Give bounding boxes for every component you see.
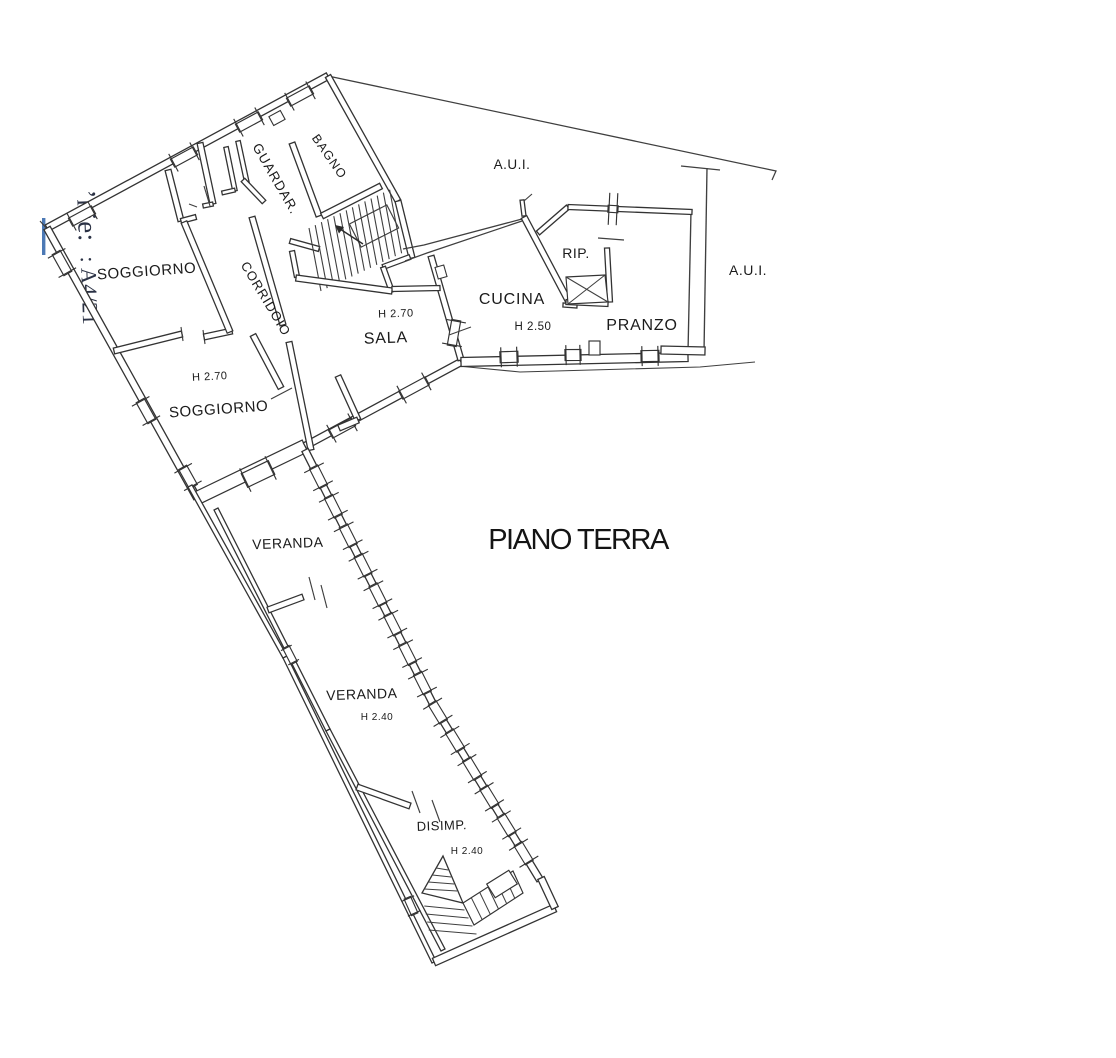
svg-text:DISIMP.: DISIMP. [416, 817, 467, 834]
svg-text:H 2.40: H 2.40 [451, 846, 483, 857]
svg-text:H 2.70: H 2.70 [192, 370, 228, 384]
svg-text:RIP.: RIP. [562, 245, 589, 261]
svg-text:PRANZO: PRANZO [606, 317, 677, 334]
svg-text:A.U.I.: A.U.I. [494, 157, 531, 172]
svg-text:H 2.50: H 2.50 [515, 321, 552, 333]
svg-text:VERANDA: VERANDA [252, 534, 324, 552]
svg-text:PIANO TERRA: PIANO TERRA [488, 524, 670, 556]
svg-text:CUCINA: CUCINA [479, 291, 545, 308]
svg-text:A.U.I.: A.U.I. [729, 262, 767, 278]
svg-text:VERANDA: VERANDA [326, 685, 398, 703]
svg-text:H 2.40: H 2.40 [361, 712, 393, 723]
svg-text:SALA: SALA [363, 329, 408, 348]
svg-text:H 2.70: H 2.70 [378, 307, 414, 320]
